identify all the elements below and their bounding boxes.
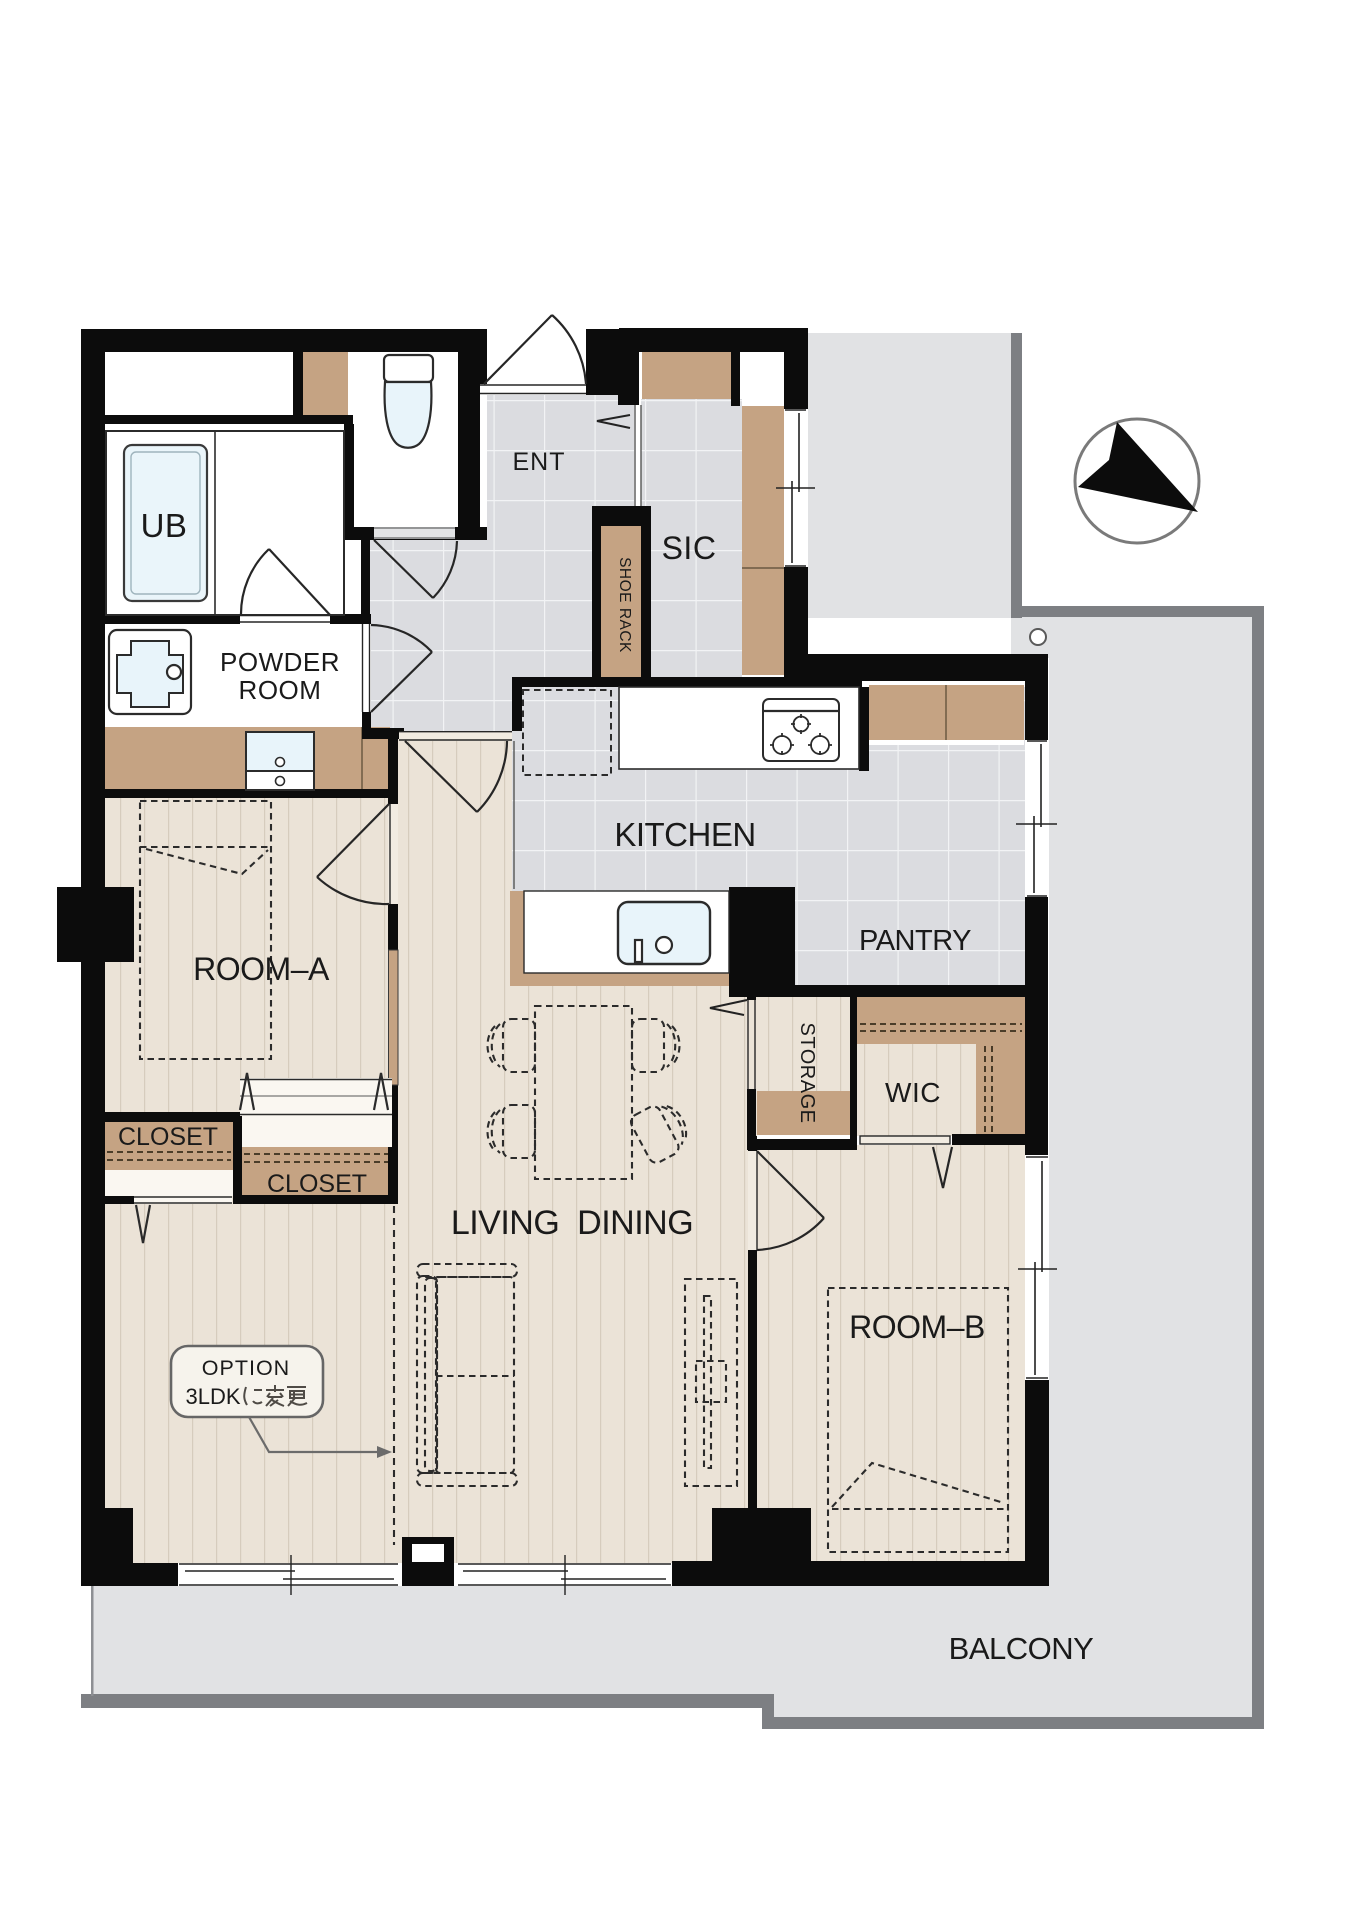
svg-text:ENT: ENT bbox=[513, 448, 566, 476]
svg-text:ROOM–B: ROOM–B bbox=[849, 1309, 985, 1345]
svg-text:STORAGE: STORAGE bbox=[796, 1023, 818, 1124]
svg-text:PANTRY: PANTRY bbox=[859, 925, 971, 957]
svg-text:BALCONY: BALCONY bbox=[949, 1631, 1094, 1666]
svg-text:ROOM–A: ROOM–A bbox=[193, 951, 330, 987]
svg-text:KITCHEN: KITCHEN bbox=[614, 816, 755, 853]
svg-text:LIVING DINING: LIVING DINING bbox=[451, 1204, 693, 1242]
svg-text:CLOSET: CLOSET bbox=[118, 1123, 218, 1151]
svg-text:CLOSET: CLOSET bbox=[267, 1170, 367, 1198]
svg-text:ROOM: ROOM bbox=[239, 675, 322, 705]
svg-text:UB: UB bbox=[141, 507, 188, 544]
svg-text:OPTION: OPTION bbox=[202, 1356, 290, 1380]
svg-text:WIC: WIC bbox=[885, 1077, 941, 1108]
svg-text:SHOE RACK: SHOE RACK bbox=[616, 557, 633, 653]
svg-text:SIC: SIC bbox=[662, 530, 717, 566]
svg-text:POWDER: POWDER bbox=[220, 647, 340, 677]
svg-text:3LDK: 3LDK bbox=[185, 1384, 240, 1409]
